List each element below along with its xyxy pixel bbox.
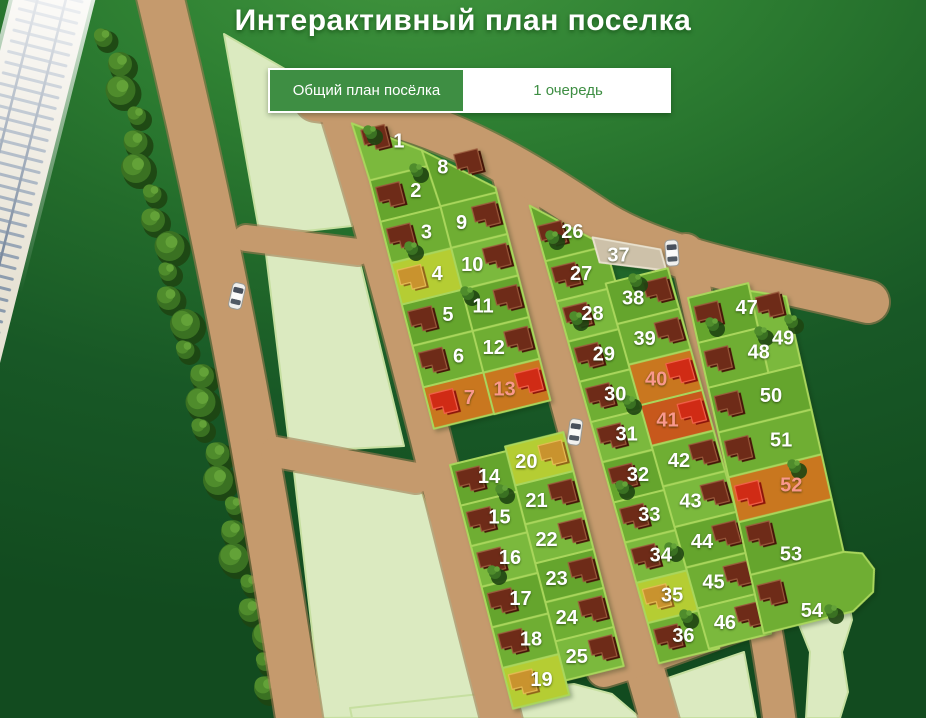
tab-general-plan[interactable]: Общий план посёлка (270, 70, 463, 111)
tree-icon (121, 153, 157, 189)
tree-icon (170, 309, 206, 345)
railway (0, 0, 102, 718)
tree-icon (158, 262, 183, 287)
tree-icon (176, 340, 201, 365)
tree-icon (191, 418, 216, 443)
road (246, 238, 358, 252)
tree-icon (186, 387, 222, 423)
tree-icon (155, 231, 191, 267)
tree-icon (143, 184, 168, 209)
plan-tabs: Общий план посёлка 1 очередь (268, 68, 671, 113)
page-title: Интерактивный план поселка (0, 4, 926, 38)
interactive-settlement-plan: 1234567891011121326272829303132333435363… (0, 0, 926, 718)
tree-icon (106, 75, 142, 111)
tree-icon (127, 106, 152, 131)
tab-first-phase[interactable]: 1 очередь (465, 68, 671, 113)
car-icon (665, 240, 680, 267)
